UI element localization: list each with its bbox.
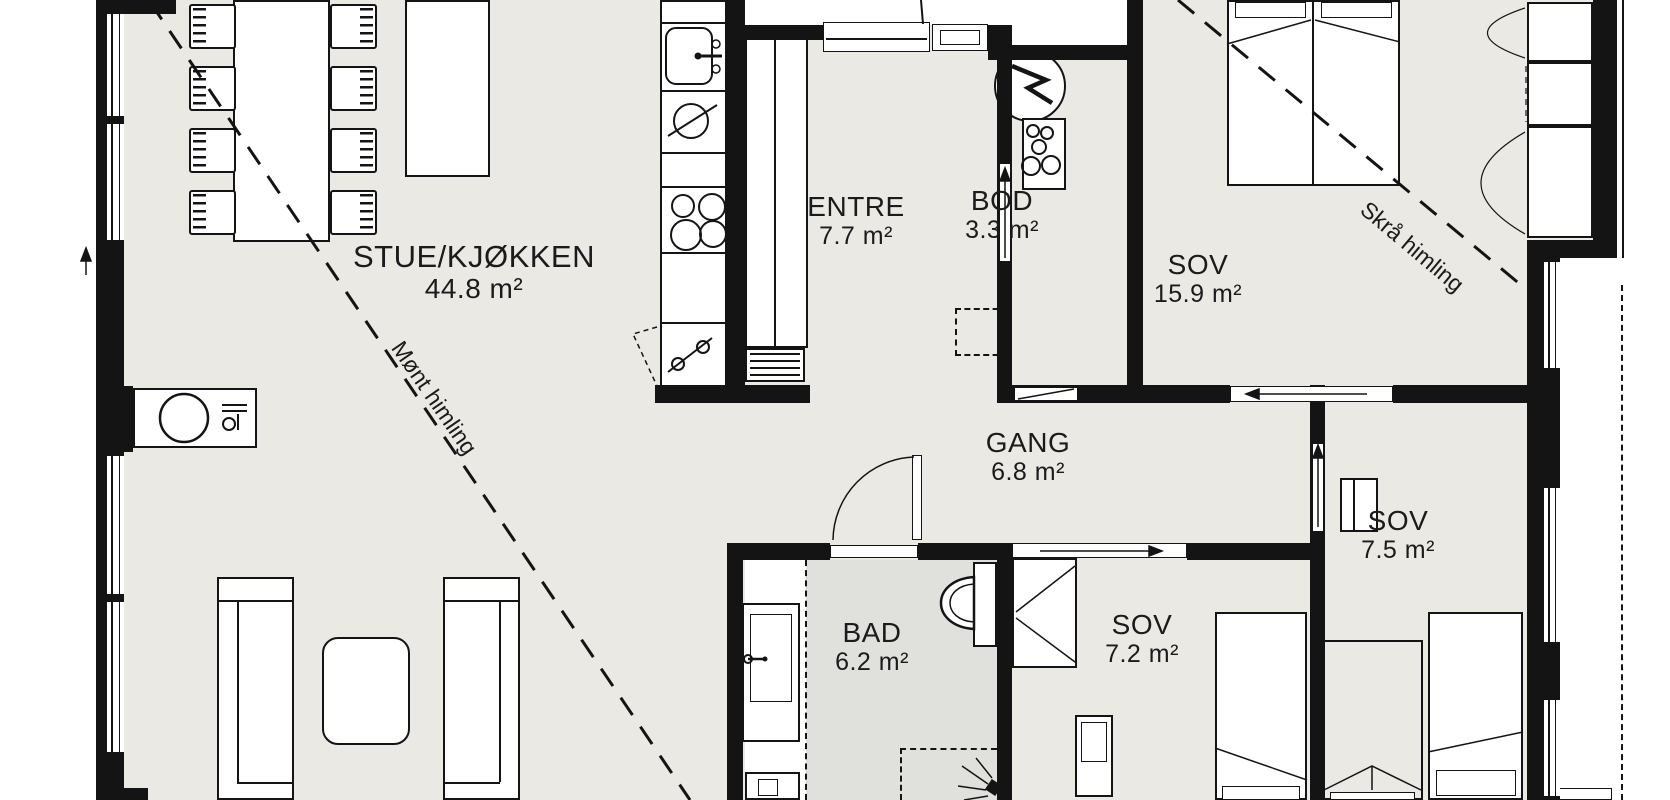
window (107, 456, 124, 594)
chair-back (193, 8, 206, 45)
room-name: BAD (792, 618, 952, 649)
bench-slats (750, 353, 800, 377)
wall-bad-sov72 (997, 543, 1012, 800)
bed-pillow (1330, 792, 1415, 800)
wall-sov159-bottom-a (1143, 385, 1230, 403)
wall-sov159-bottom-b (1393, 385, 1545, 403)
single-bed-gray (1322, 640, 1423, 800)
room-area: 6.8 m² (948, 459, 1108, 487)
kitchen-island (405, 0, 490, 177)
bath-cabinet-inner (758, 779, 778, 796)
wardrobe-unit (1527, 2, 1593, 62)
bed-pillow (1222, 786, 1300, 800)
nightstand-inner (1081, 722, 1107, 762)
dining-table (233, 0, 330, 242)
room-area: 6.2 m² (792, 649, 952, 677)
counter-divider (662, 90, 725, 92)
room-label-sov-7-5: SOV 7.5 m² (1318, 506, 1478, 564)
counter-divider (662, 252, 725, 254)
chair-back (360, 70, 373, 107)
bed-pillow (1235, 2, 1306, 18)
sofa-back-line (237, 600, 239, 782)
counter-divider (662, 22, 725, 24)
room-name: STUE/KJØKKEN (324, 240, 624, 274)
counter-divider (662, 152, 725, 154)
chair (189, 128, 236, 173)
chair-back (193, 194, 206, 231)
shower-zone (900, 748, 997, 800)
kitchen-counter (660, 0, 727, 388)
wall-exterior-right-lower (1527, 258, 1545, 800)
room-area: 7.2 m² (1062, 641, 1222, 669)
bath-zone-dashed-line (805, 560, 807, 800)
outside-porch-nook (1012, 0, 1143, 45)
floor-plan: STUE/KJØKKEN 44.8 m² ENTRE 7.7 m² BOD 3.… (0, 0, 1670, 800)
washing-machine (1022, 118, 1066, 190)
roof-overhang-line (1622, 0, 1624, 258)
room-name: GANG (948, 428, 1108, 459)
wall-bad-left (727, 543, 743, 800)
wall-bod-sov (1127, 0, 1143, 403)
wall-exterior-right-upper (1593, 0, 1617, 258)
sofa-armrest-line (445, 600, 518, 602)
room-name: SOV (1118, 250, 1278, 281)
coffee-table (322, 637, 410, 745)
chair-back (360, 194, 373, 231)
threshold-line (826, 38, 927, 40)
wall-entre-bottom (655, 385, 810, 403)
bed-pillow (1436, 770, 1516, 796)
wardrobe-divider (774, 35, 776, 346)
counter-divider (662, 186, 725, 188)
window (107, 124, 124, 240)
fireplace (133, 388, 257, 448)
wall-entre-top (745, 25, 823, 40)
chair (189, 66, 236, 111)
wall-gang-bottom (1187, 543, 1312, 560)
wall-right-step (1527, 240, 1617, 258)
room-label-stue-kjokken: STUE/KJØKKEN 44.8 m² (324, 240, 624, 305)
room-area: 44.8 m² (324, 274, 624, 305)
chair (189, 4, 236, 49)
entry-door-threshold (823, 22, 930, 52)
wall-kitchen-entre (727, 0, 745, 403)
vanity-sink (750, 614, 792, 702)
room-name: SOV (1318, 506, 1478, 537)
window (1544, 262, 1560, 368)
bad-door-threshold (830, 545, 918, 558)
room-name: BOD (942, 186, 1062, 217)
sofa-armrest-line (237, 782, 292, 784)
room-name: ENTRE (776, 192, 936, 223)
wall-top-left-stub (96, 0, 176, 14)
counter-divider (662, 322, 725, 324)
room-area: 7.5 m² (1318, 537, 1478, 565)
entry-wardrobe (745, 33, 808, 348)
sofa-right (443, 577, 520, 800)
sliding-door-sov159 (1230, 386, 1393, 402)
entry-bench (745, 348, 805, 382)
chair (330, 4, 377, 49)
toilet-tank (973, 562, 997, 647)
pocket-housing (1014, 387, 1078, 401)
side-window-inner (940, 30, 980, 45)
direction-arrow-icon (81, 248, 91, 275)
chair-back (360, 8, 373, 45)
room-label-sov-7-2: SOV 7.2 m² (1062, 610, 1222, 668)
wall-fireplace-back (96, 386, 133, 452)
single-bed (1215, 612, 1307, 800)
window (107, 602, 124, 752)
room-area: 3.3 m² (942, 217, 1062, 245)
room-area: 7.7 m² (776, 223, 936, 251)
sofa-armrest-line (445, 782, 500, 784)
roof-overhang-dashed-line (1621, 285, 1623, 800)
window (107, 14, 124, 116)
wall-bottom-left-stub (96, 788, 148, 800)
room-label-gang: GANG 6.8 m² (948, 428, 1108, 486)
window (1544, 488, 1560, 642)
chair-back (193, 132, 206, 169)
chair (330, 128, 377, 173)
bed-pillow (1321, 2, 1392, 18)
wardrobe-unit (1527, 126, 1593, 238)
sofa-armrest-line (219, 600, 292, 602)
bed-center-line (1312, 2, 1314, 184)
room-name: SOV (1062, 610, 1222, 641)
chair (330, 66, 377, 111)
wall-bod-top (1012, 45, 1143, 60)
sofa-back-line (499, 600, 501, 782)
room-area: 15.9 m² (1118, 281, 1278, 309)
sliding-door-sov72 (1012, 543, 1187, 558)
room-label-sov-15-9: SOV 15.9 m² (1118, 250, 1278, 308)
chair-back (193, 70, 206, 107)
chair-back (360, 132, 373, 169)
chair (330, 190, 377, 235)
wardrobe-unit (1527, 62, 1593, 126)
room-label-bod: BOD 3.3 m² (942, 186, 1062, 244)
room-label-entre: ENTRE 7.7 m² (776, 192, 936, 250)
sofa-left (217, 577, 294, 800)
room-label-bad: BAD 6.2 m² (792, 618, 952, 676)
chair (189, 190, 236, 235)
window (1544, 700, 1560, 796)
door-leaf (912, 455, 922, 540)
